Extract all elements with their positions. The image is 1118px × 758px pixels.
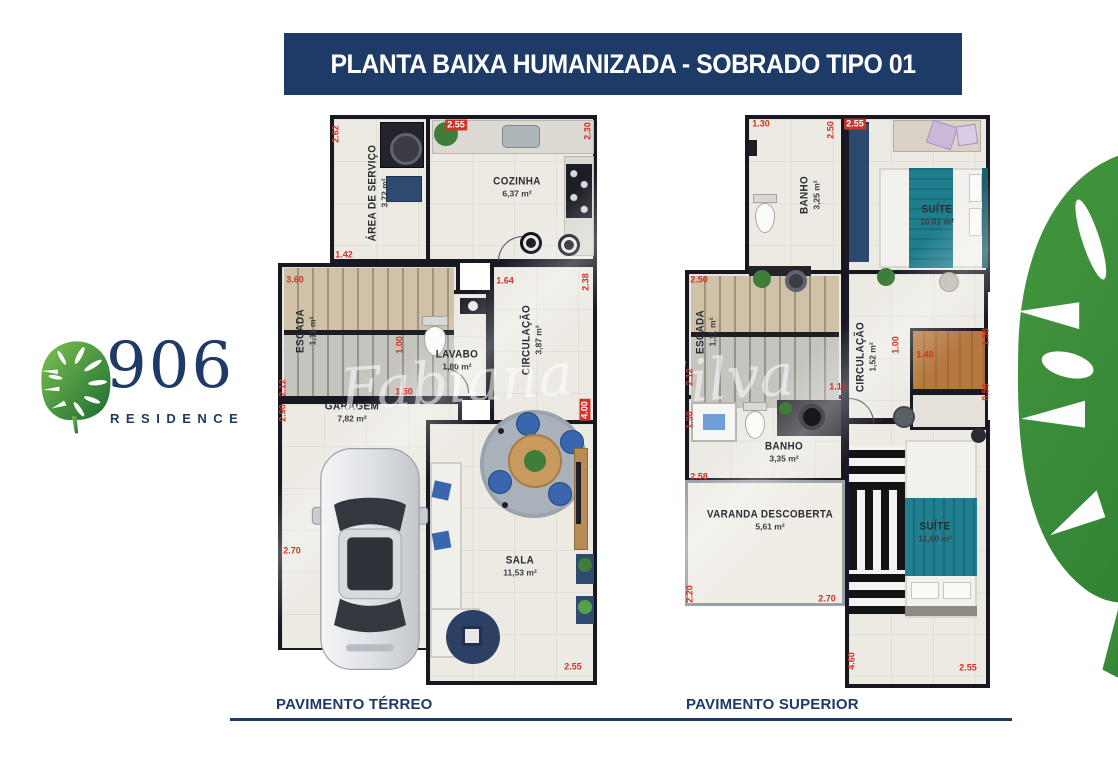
marketing-floor-plan-page: PLANTA BAIXA HUMANIZADA - SOBRADO TIPO 0… (0, 0, 1118, 758)
bed-pillow (943, 582, 971, 599)
dimension-label: 2.55 (564, 663, 582, 672)
bed-headboard (982, 168, 988, 268)
room-label-escada: ESCADA1,11 m² (295, 307, 318, 356)
room-label-lavabo: LAVABO1,80 m² (433, 349, 480, 372)
desk-item (956, 124, 979, 147)
nightstand-lamp (971, 428, 986, 443)
linen-closet (910, 392, 988, 430)
floor-plant (877, 268, 895, 286)
dimension-label: 2.50 (827, 121, 836, 139)
dimension-label: 1.58 (982, 328, 991, 346)
pouf (939, 272, 959, 292)
title-banner: PLANTA BAIXA HUMANIZADA - SOBRADO TIPO 0… (284, 33, 962, 95)
laundry-tank (386, 176, 422, 202)
dimension-label: 1.40 (916, 351, 934, 360)
toilet-tank (422, 316, 448, 326)
vanity-sink (799, 404, 825, 430)
dimension-label: 2.12 (686, 368, 695, 386)
dimension-label: 2.55 (959, 664, 977, 673)
logo-number: 906 (106, 329, 234, 403)
rug-dot (502, 502, 508, 508)
dimension-label: 2.58 (690, 473, 708, 482)
dimension-label: 2.62 (332, 125, 341, 143)
page-title: PLANTA BAIXA HUMANIZADA - SOBRADO TIPO 0… (330, 49, 915, 80)
decor-plate (520, 232, 542, 254)
vanity-plant (753, 270, 771, 288)
shower-fixture (749, 140, 757, 156)
monstera-leaf-icon (36, 337, 114, 437)
monstera-leaf-decoration (998, 132, 1118, 692)
dimension-label: 1.12 (829, 383, 847, 392)
dimension-label: 2.38 (582, 273, 591, 291)
plant-shelf (576, 554, 594, 584)
dimension-label: 2.55 (844, 119, 866, 130)
vanity-plant (779, 402, 792, 415)
sofa-pillow (431, 480, 451, 500)
dimension-label: 0.56 (982, 383, 991, 401)
room-label-area-servico: ÁREA DE SERVIÇO3,72 m² (367, 139, 390, 246)
dining-chair (488, 470, 512, 494)
dimension-label: 4.00 (580, 399, 591, 421)
dimension-label: 2.55 (445, 120, 467, 131)
bathtub (691, 402, 737, 442)
rug-dot (498, 428, 504, 434)
plant (578, 600, 592, 614)
room-label-cozinha: COZINHA6,37 m² (491, 176, 544, 199)
bed-pillow (969, 174, 982, 202)
bed-pillow (969, 208, 982, 236)
logo-name: RESIDENCE (110, 411, 244, 426)
floor-plan-terreo: ÁREA DE SERVIÇO3,72 m² COZINHA6,37 m² ES… (276, 110, 598, 688)
room-label-suite-2: SUÍTE11,60 m² (918, 521, 952, 544)
dimension-label: 1.50 (395, 388, 413, 397)
dimension-label: 2.70 (818, 595, 836, 604)
room-label-suite-1: SUÍTE10,01 m² (920, 204, 954, 227)
dimension-label: 2.90 (279, 404, 288, 422)
dimension-label: 2.70 (283, 547, 301, 556)
rug-pattern-tile (462, 626, 482, 646)
washer-drum (390, 133, 422, 165)
plant (578, 558, 592, 572)
floor-plan-superior: BANHO3,25 m² SUÍTE10,01 m² ESCADA1,11 m²… (683, 110, 990, 688)
toilet-tank (743, 402, 767, 411)
dimension-label: 1.30 (686, 411, 695, 429)
caption-pavimento-superior: PAVIMENTO SUPERIOR (686, 696, 859, 713)
sofa-pillow (432, 531, 452, 551)
divider-rule (230, 718, 1012, 721)
dimension-label: 2.12 (279, 379, 288, 397)
stove-cooktop (566, 164, 592, 218)
tv-screen (576, 462, 581, 524)
room-label-garagem: GARAGEM7,82 m² (322, 401, 382, 424)
dimension-label: 2.50 (690, 276, 708, 285)
toilet-tank (753, 194, 777, 203)
dimension-label: 4.60 (848, 652, 857, 670)
dining-chair (516, 412, 540, 436)
dimension-label: 1.30 (752, 120, 770, 129)
pouf (893, 406, 915, 428)
car-top-view (310, 443, 430, 675)
room-label-banho-2: BANHO3,35 m² (763, 441, 805, 464)
room-label-varanda: VARANDA DESCOBERTA5,61 m² (700, 509, 840, 532)
lavabo-vanity (460, 298, 486, 314)
room-label-sala: SALA11,53 m² (503, 555, 537, 578)
wardrobe-blue (849, 122, 869, 262)
plant-shelf (576, 596, 594, 624)
lavabo-sink (468, 301, 478, 311)
bed-bench (905, 606, 977, 616)
dimension-label: 1.42 (335, 251, 353, 260)
decor-plate (558, 234, 580, 256)
bath-mat (703, 414, 725, 430)
dimension-label: 1.64 (496, 277, 514, 286)
logo-906-residence: 906 RESIDENCE (36, 335, 236, 445)
dimension-label: 1.00 (396, 336, 405, 354)
room-varanda (685, 480, 845, 606)
dimension-label: 2.20 (686, 585, 695, 603)
dining-chair (548, 482, 572, 506)
dimension-label: 1.00 (892, 336, 901, 354)
dimension-label: 2.30 (584, 122, 593, 140)
room-label-banho-1: BANHO3,25 m² (799, 174, 822, 216)
room-label-circulacao: CIRCULAÇÃO3,87 m² (521, 301, 544, 379)
table-plant (524, 450, 546, 472)
room-label-escada-superior: ESCADA1,11 m² (695, 308, 718, 357)
bed-pillow (911, 582, 939, 599)
wardrobe-wood (910, 328, 988, 392)
kitchen-sink (502, 125, 540, 148)
caption-pavimento-terreo: PAVIMENTO TÉRREO (276, 696, 433, 713)
room-label-circulacao-superior: CIRCULAÇÃO1,52 m² (855, 318, 878, 396)
dimension-label: 3.60 (286, 276, 304, 285)
vanity-sink (785, 270, 807, 292)
